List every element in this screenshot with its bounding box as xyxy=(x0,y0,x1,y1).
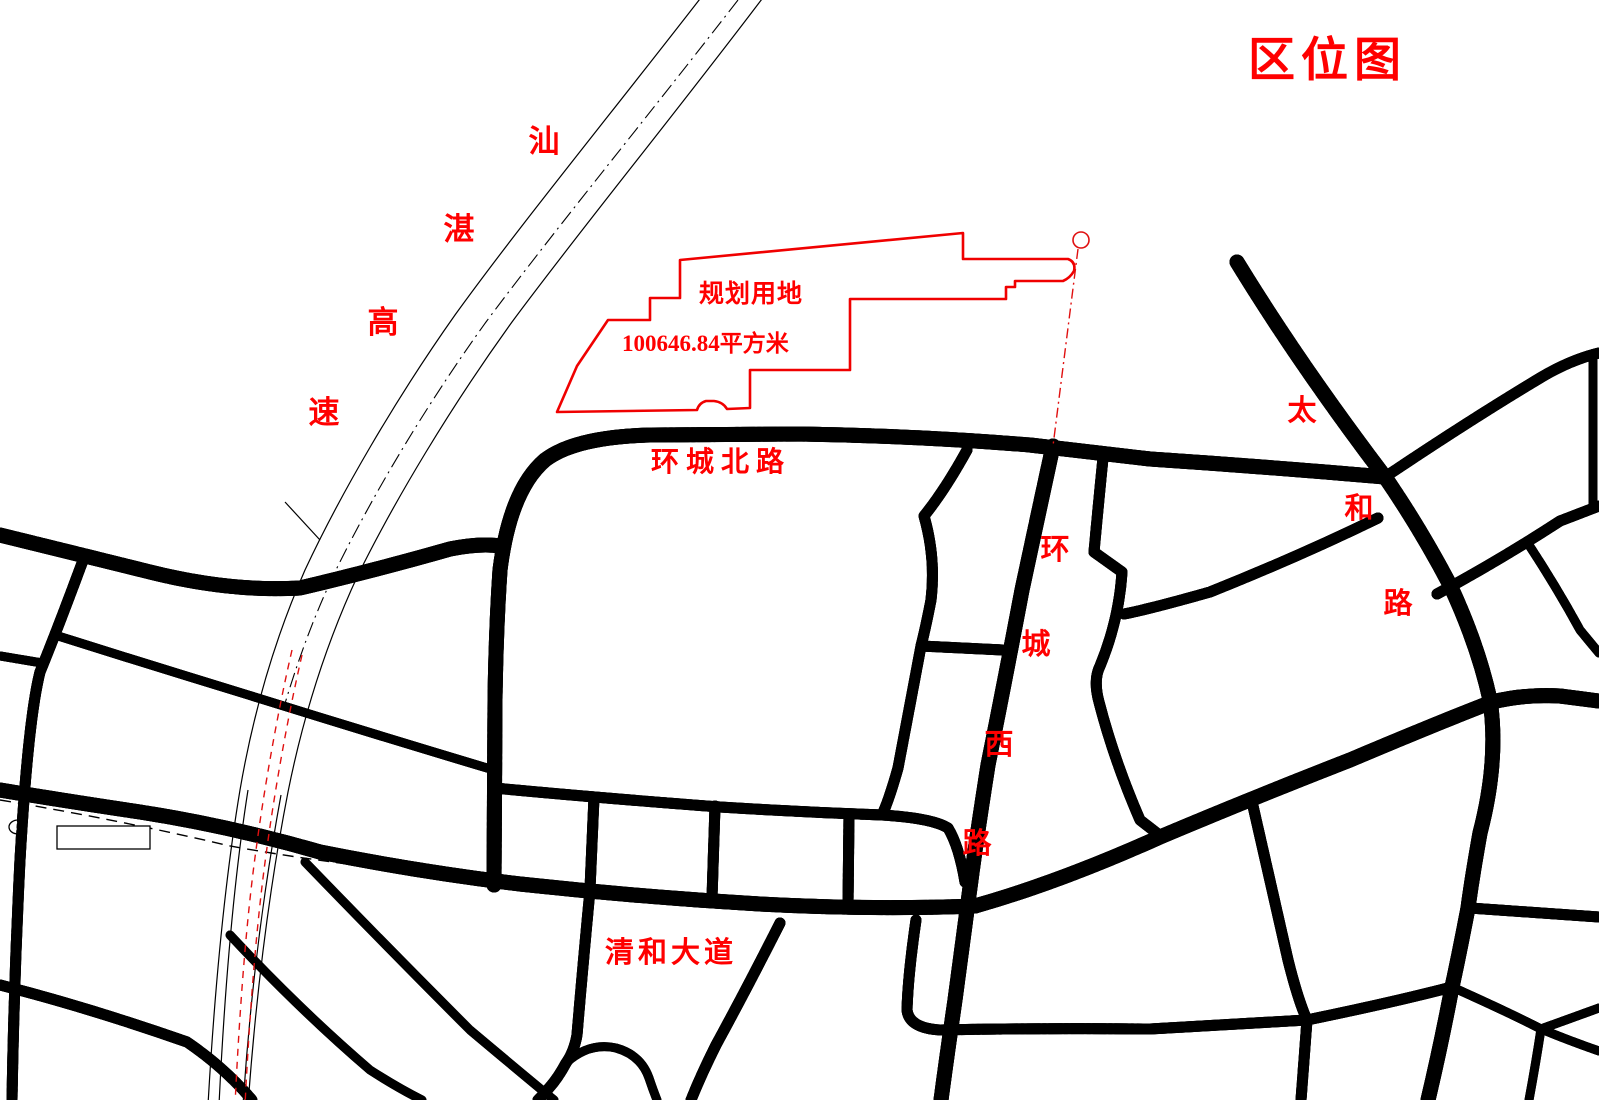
expressway-char: 湛 xyxy=(444,212,475,247)
expressway-char: 汕 xyxy=(529,124,560,159)
circle-marker xyxy=(1073,232,1089,248)
west-ring-char: 环 xyxy=(1040,534,1069,566)
road-fills xyxy=(0,262,1599,1100)
taihe-char: 太 xyxy=(1287,394,1317,427)
bridge-rectangle-symbol xyxy=(57,826,150,849)
map-title: 区位图 xyxy=(1248,35,1407,87)
parcel-label: 规划用地 xyxy=(699,280,803,308)
expressway-char: 高 xyxy=(368,305,399,340)
road-centerlines xyxy=(0,262,1599,1100)
road-line xyxy=(0,985,252,1100)
expressway-char: 速 xyxy=(309,395,340,430)
expressway-ramp-stub xyxy=(285,502,320,540)
parcel-outline xyxy=(557,233,1074,412)
west-ring-char: 西 xyxy=(984,729,1013,761)
parcel-area: 100646.84平方米 xyxy=(622,330,790,356)
taihe-char: 路 xyxy=(1383,587,1413,620)
road-line xyxy=(907,920,1452,1030)
road-label-expressway: 汕 湛 高 速 xyxy=(309,124,560,430)
taihe-char: 和 xyxy=(1344,492,1373,525)
west-ring-char: 城 xyxy=(1021,628,1050,661)
map-canvas: 区位图 规划用地 100646.84平方米 环城北路 清和大道 汕 湛 高 速 … xyxy=(0,0,1599,1100)
location-map-drawing: 区位图 规划用地 100646.84平方米 环城北路 清和大道 汕 湛 高 速 … xyxy=(0,0,1599,1100)
road-casings xyxy=(0,262,1599,1100)
road-label-qinghe: 清和大道 xyxy=(605,936,737,969)
road-label-north-ring: 环城北路 xyxy=(651,446,791,478)
west-ring-char: 路 xyxy=(962,827,992,860)
